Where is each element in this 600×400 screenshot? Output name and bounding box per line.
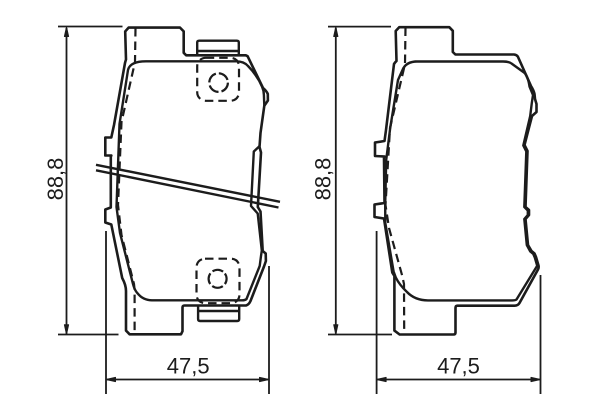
svg-text:88,8: 88,8 [311,158,336,201]
svg-text:88,8: 88,8 [43,158,68,201]
svg-text:47,5: 47,5 [167,354,210,379]
svg-text:47,5: 47,5 [437,354,480,379]
